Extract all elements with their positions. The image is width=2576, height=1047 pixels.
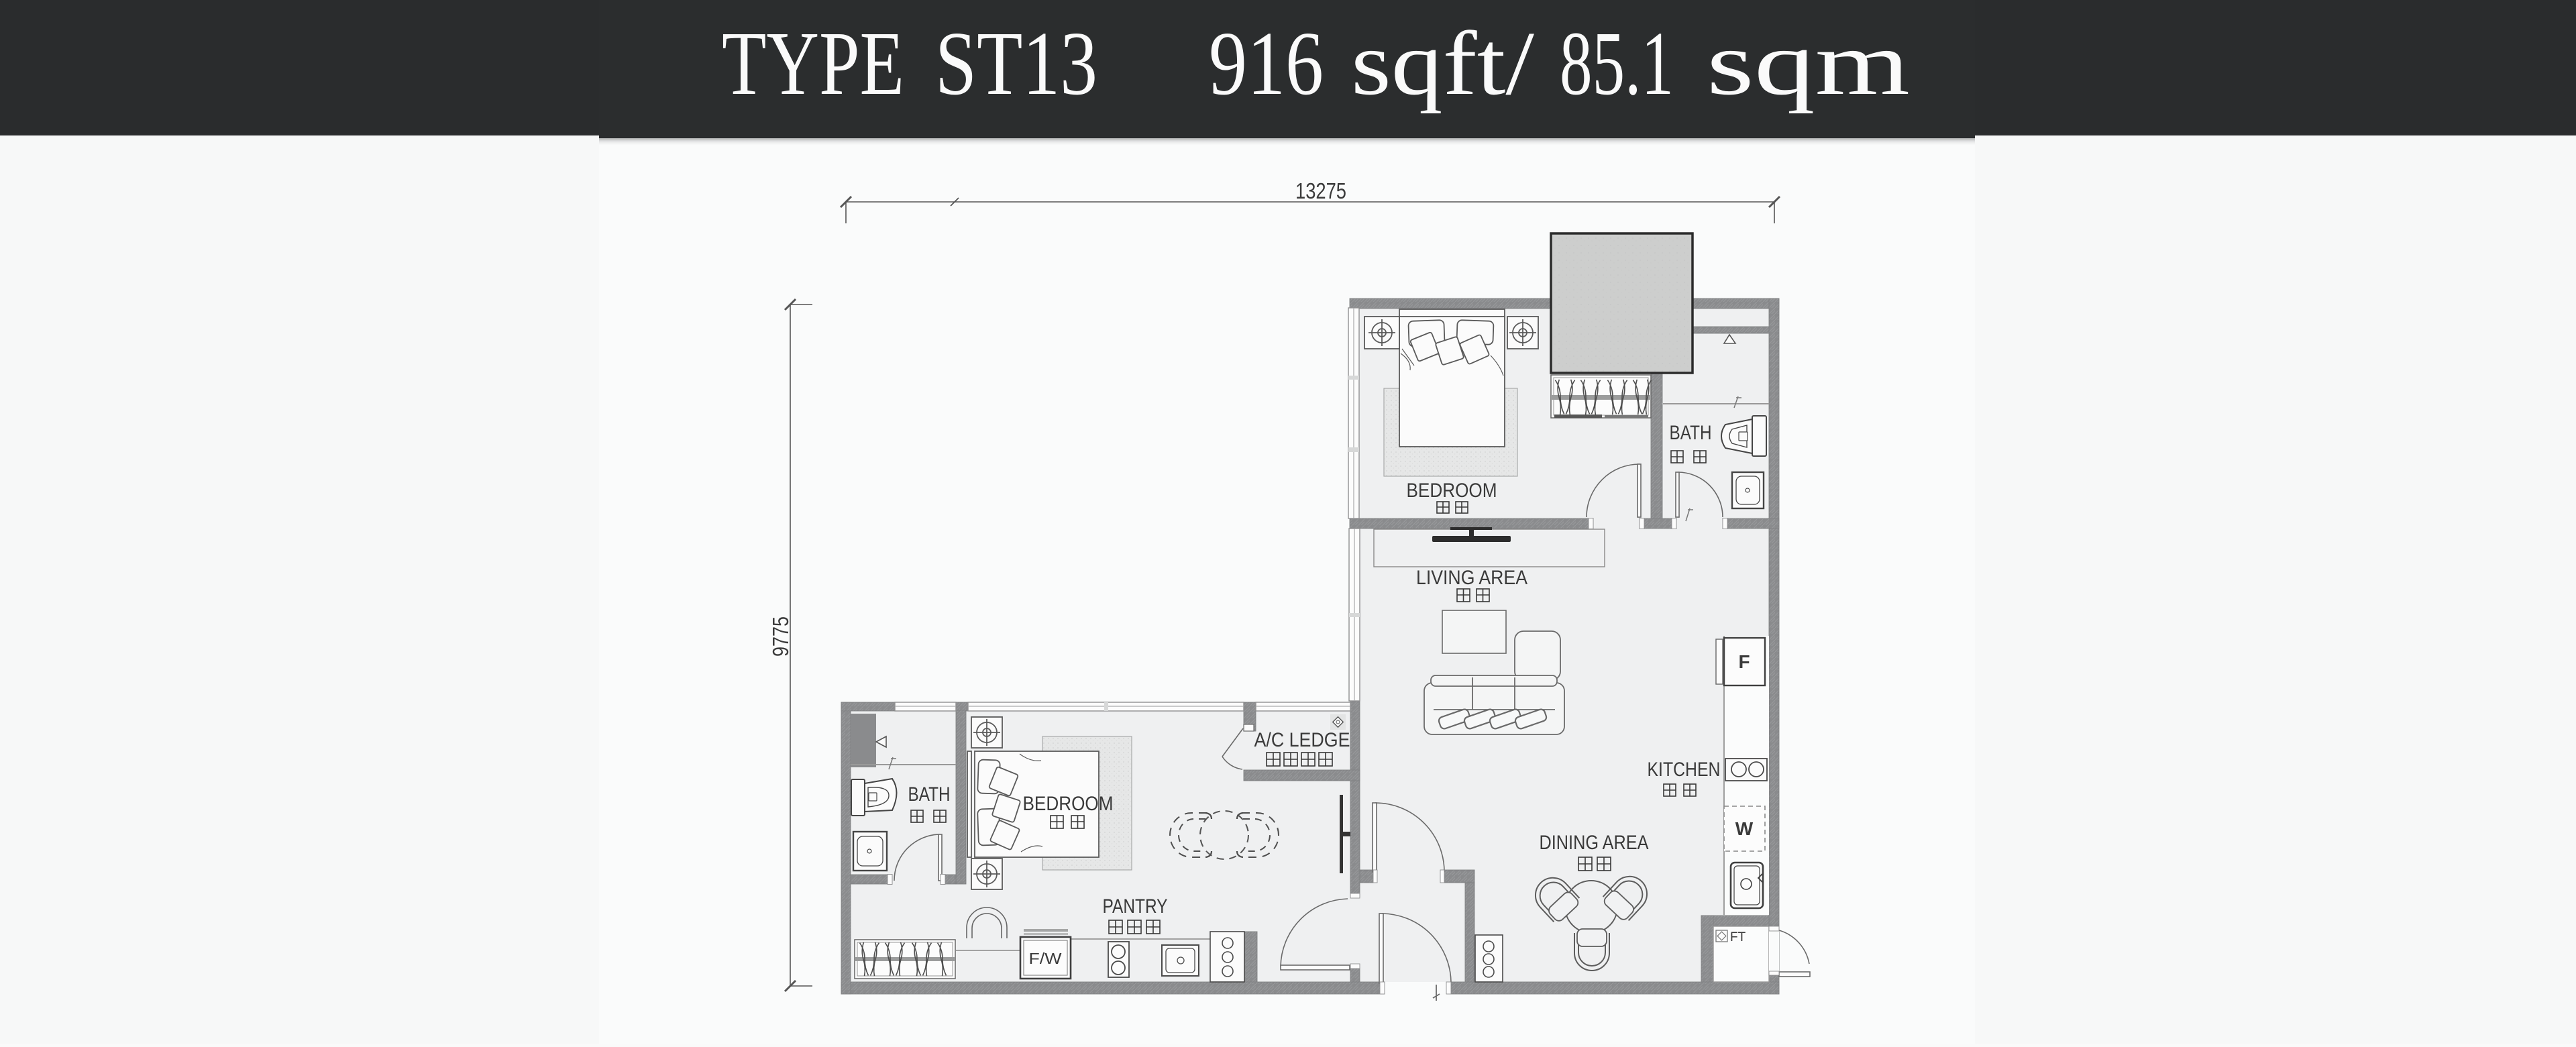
svg-text:LIVING AREA: LIVING AREA xyxy=(1416,567,1527,589)
svg-text:TYPE: TYPE xyxy=(722,13,904,114)
svg-text:BATH: BATH xyxy=(908,783,951,806)
svg-text:BEDROOM: BEDROOM xyxy=(1023,793,1114,815)
svg-text:sqm: sqm xyxy=(1707,13,1910,114)
svg-text:85.1: 85.1 xyxy=(1560,13,1674,114)
svg-text:9775: 9775 xyxy=(768,616,793,657)
svg-text:DINING AREA: DINING AREA xyxy=(1540,832,1649,854)
svg-text:F: F xyxy=(1738,651,1750,672)
svg-text:KITCHEN: KITCHEN xyxy=(1648,759,1721,781)
svg-text:A/C LEDGE: A/C LEDGE xyxy=(1254,729,1350,751)
svg-text:FT: FT xyxy=(1730,930,1746,944)
svg-text:sqft/: sqft/ xyxy=(1351,13,1534,114)
svg-text:BATH: BATH xyxy=(1670,422,1712,444)
svg-text:BEDROOM: BEDROOM xyxy=(1407,480,1497,502)
svg-text:F/W: F/W xyxy=(1029,950,1062,967)
svg-text:916: 916 xyxy=(1209,13,1324,114)
svg-text:W: W xyxy=(1735,818,1754,839)
svg-text:13275: 13275 xyxy=(1295,178,1346,203)
svg-text:ST13: ST13 xyxy=(935,13,1097,114)
svg-text:PANTRY: PANTRY xyxy=(1103,895,1168,918)
